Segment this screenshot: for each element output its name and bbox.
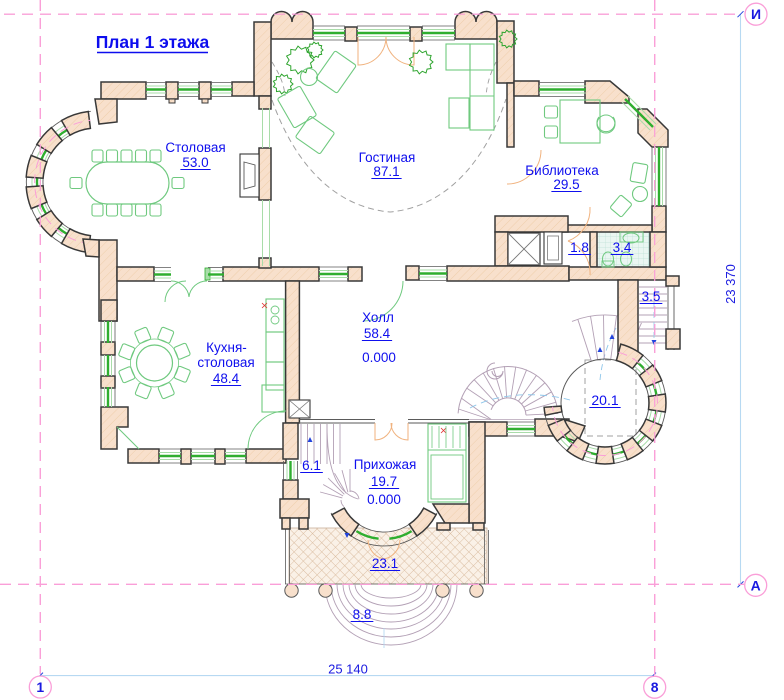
svg-text:25 140: 25 140 <box>328 662 368 677</box>
svg-text:1.8: 1.8 <box>570 240 589 255</box>
svg-text:53.0: 53.0 <box>182 155 208 170</box>
svg-text:8.8: 8.8 <box>353 607 372 622</box>
svg-text:29.5: 29.5 <box>553 177 579 192</box>
svg-text:6.1: 6.1 <box>302 458 321 473</box>
svg-text:План 1 этажа: План 1 этажа <box>96 32 210 52</box>
svg-text:Кухня-: Кухня- <box>206 340 247 355</box>
svg-text:20.1: 20.1 <box>591 392 618 408</box>
svg-text:8: 8 <box>651 679 659 695</box>
svg-text:3.4: 3.4 <box>613 240 632 255</box>
svg-text:А: А <box>751 577 761 593</box>
svg-text:Столовая: Столовая <box>165 140 225 155</box>
svg-text:3.5: 3.5 <box>642 289 661 304</box>
svg-text:87.1: 87.1 <box>373 164 399 179</box>
svg-text:48.4: 48.4 <box>213 371 240 386</box>
svg-text:0.000: 0.000 <box>367 492 401 507</box>
svg-text:19.7: 19.7 <box>371 474 397 489</box>
svg-text:1: 1 <box>36 679 44 695</box>
svg-text:Гостиная: Гостиная <box>359 150 416 165</box>
svg-text:И: И <box>751 6 761 22</box>
svg-text:Холл: Холл <box>362 310 394 325</box>
svg-text:23 370: 23 370 <box>723 264 738 304</box>
svg-text:Библиотека: Библиотека <box>525 163 599 178</box>
svg-text:23.1: 23.1 <box>372 556 398 571</box>
svg-text:0.000: 0.000 <box>362 350 396 365</box>
svg-text:Прихожая: Прихожая <box>354 457 417 472</box>
svg-text:58.4: 58.4 <box>364 326 391 341</box>
svg-text:столовая: столовая <box>197 355 254 370</box>
